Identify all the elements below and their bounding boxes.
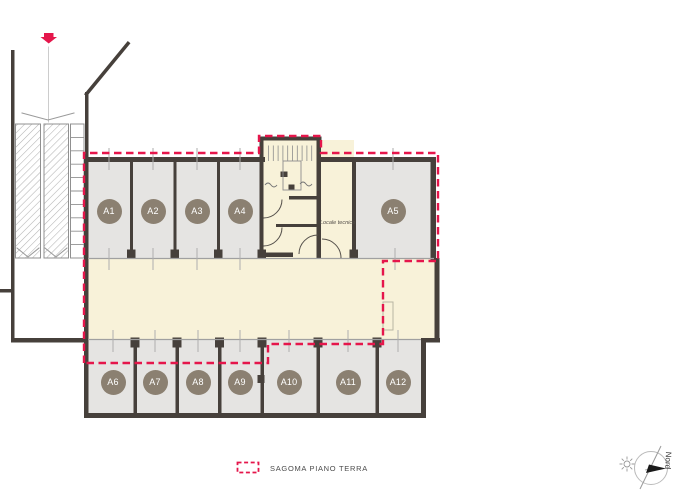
unit-badge-a5: A5 — [381, 199, 406, 224]
north-compass-icon — [620, 446, 668, 489]
unit-badge-a12: A12 — [386, 370, 411, 395]
unit-badge-a6: A6 — [101, 370, 126, 395]
north-label: Nord — [663, 452, 673, 470]
sun-icon — [620, 457, 635, 472]
floorplan-drawing — [0, 0, 690, 500]
corridor-floor — [88, 258, 437, 340]
angled-boundary-wall — [87, 44, 129, 95]
ramp-lane-right — [44, 124, 69, 258]
unit-badge-a10: A10 — [277, 370, 302, 395]
legend-label: SAGOMA PIANO TERRA — [270, 464, 368, 473]
floorplan-canvas: A1A2A3A4A5A6A7A8A9A10A11A12 Locale tecni… — [0, 0, 690, 500]
unit-badge-a7: A7 — [143, 370, 168, 395]
entry-arrow-icon — [41, 33, 58, 44]
bottom-units-floor — [88, 340, 422, 414]
ramp-area — [16, 47, 85, 258]
unit-badge-a9: A9 — [228, 370, 253, 395]
ramp-lane-left — [16, 124, 41, 258]
unit-badge-a2: A2 — [141, 199, 166, 224]
legend: SAGOMA PIANO TERRA — [236, 461, 368, 475]
unit-badge-a8: A8 — [186, 370, 211, 395]
unit-badge-a3: A3 — [185, 199, 210, 224]
room-label-locale-tecnico: Locale tecnico — [320, 220, 355, 226]
sagoma-dashed-rect-icon — [236, 461, 261, 475]
unit-badge-a11: A11 — [336, 370, 361, 395]
unit-badge-a1: A1 — [97, 199, 122, 224]
unit-badge-a4: A4 — [228, 199, 253, 224]
